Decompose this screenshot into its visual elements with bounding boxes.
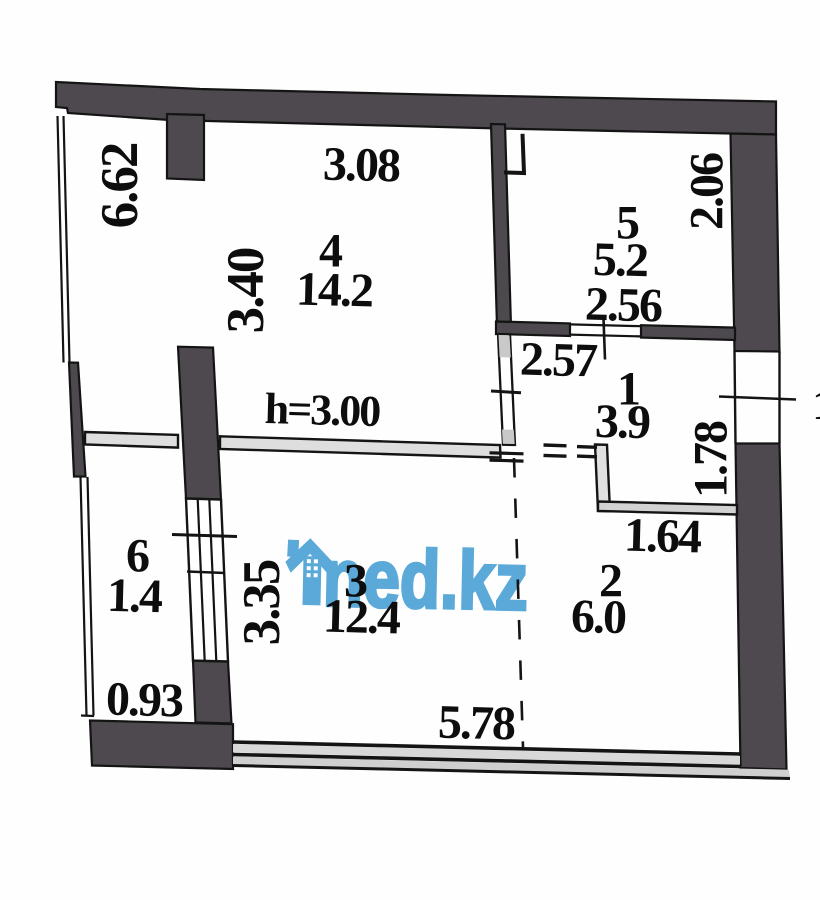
svg-text:6.0: 6.0 (570, 590, 626, 644)
svg-text:3.9: 3.9 (594, 395, 650, 449)
svg-text:1: 1 (813, 383, 820, 429)
svg-text:3.08: 3.08 (322, 138, 400, 193)
svg-text:2.56: 2.56 (584, 278, 662, 333)
svg-text:12.4: 12.4 (322, 590, 401, 645)
svg-text:1.64: 1.64 (623, 509, 702, 564)
svg-text:6.62: 6.62 (91, 143, 149, 228)
svg-text:1.78: 1.78 (685, 421, 738, 498)
svg-text:3.35: 3.35 (233, 560, 291, 645)
svg-text:5.78: 5.78 (437, 696, 515, 751)
svg-text:h=3.00: h=3.00 (264, 384, 381, 436)
svg-text:2.06: 2.06 (681, 153, 734, 230)
svg-text:0.93: 0.93 (105, 673, 183, 728)
svg-text:14.2: 14.2 (295, 263, 372, 318)
svg-text:3.40: 3.40 (217, 248, 275, 333)
svg-text:1.4: 1.4 (106, 569, 163, 623)
svg-text:2.57: 2.57 (519, 333, 597, 388)
